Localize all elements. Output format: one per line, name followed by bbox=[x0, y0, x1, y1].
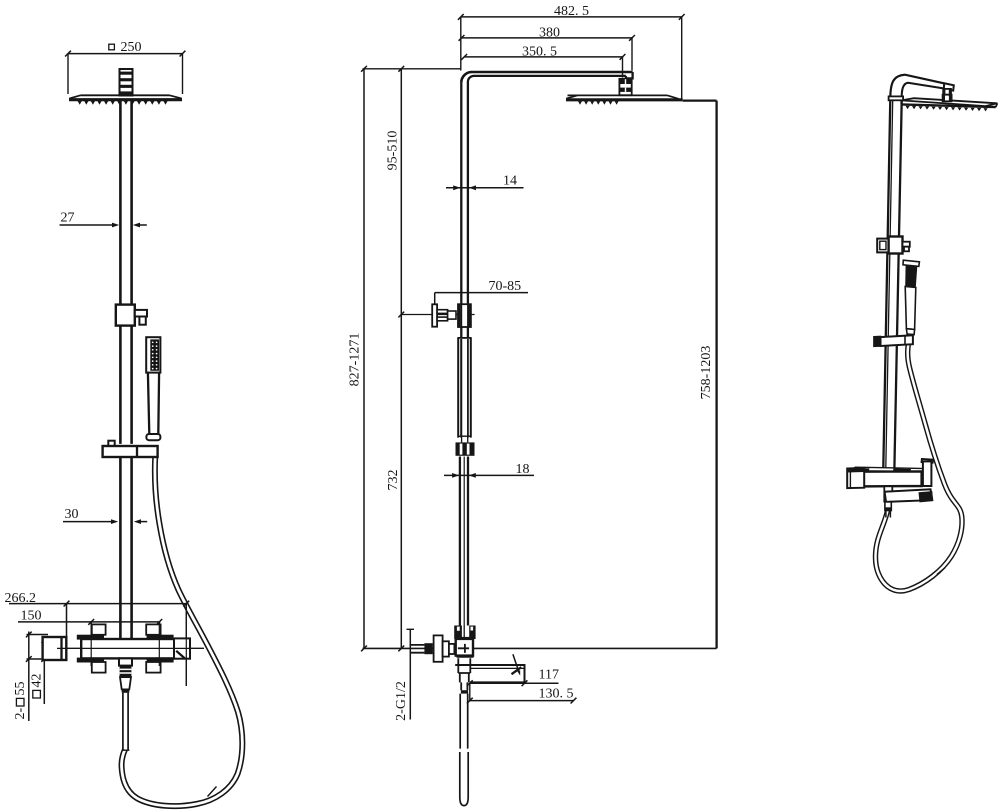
svg-text:55: 55 bbox=[13, 682, 28, 696]
svg-text:70-85: 70-85 bbox=[489, 279, 522, 294]
svg-text:758-1203: 758-1203 bbox=[699, 346, 714, 400]
svg-text:2-: 2- bbox=[13, 708, 28, 720]
svg-text:30: 30 bbox=[65, 507, 79, 522]
svg-text:117: 117 bbox=[539, 668, 559, 683]
svg-text:2-G1/2: 2-G1/2 bbox=[394, 681, 409, 721]
svg-text:827-1271: 827-1271 bbox=[348, 333, 363, 387]
svg-text:27: 27 bbox=[61, 211, 75, 226]
svg-text:18: 18 bbox=[516, 462, 530, 477]
svg-text:732: 732 bbox=[386, 470, 401, 491]
svg-text:14: 14 bbox=[503, 173, 517, 188]
svg-text:95-510: 95-510 bbox=[386, 131, 401, 171]
svg-text:250: 250 bbox=[121, 40, 142, 55]
svg-text:130. 5: 130. 5 bbox=[539, 687, 574, 702]
svg-text:42: 42 bbox=[30, 674, 45, 688]
